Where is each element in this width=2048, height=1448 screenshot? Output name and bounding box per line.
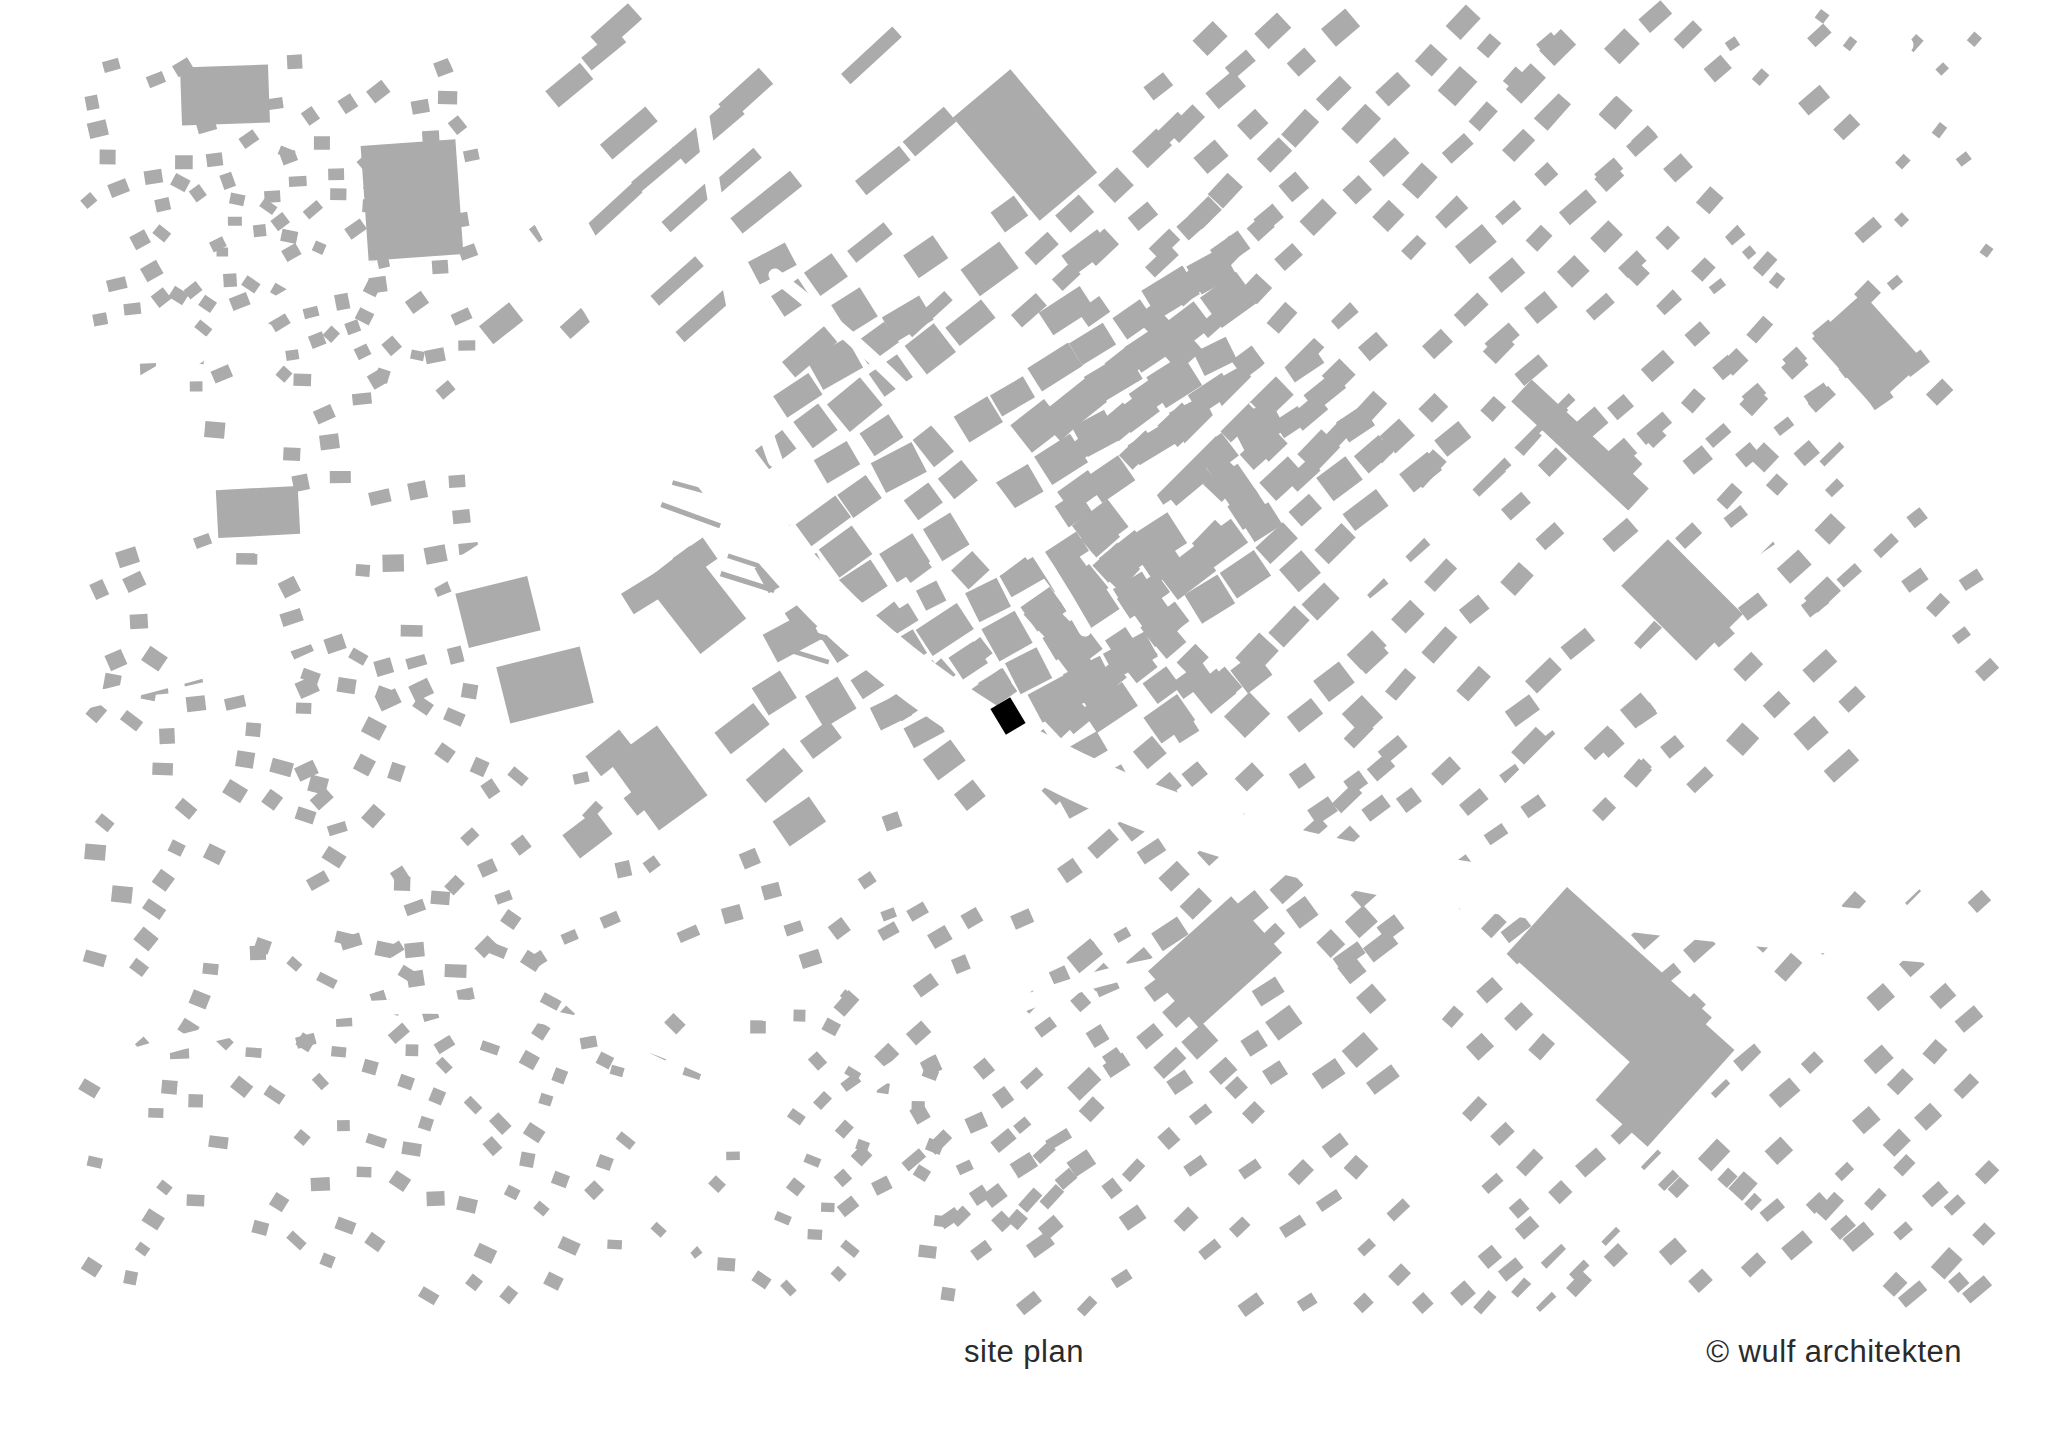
caption-site-plan: site plan bbox=[964, 1332, 1084, 1372]
site-plan-page: site plan © wulf architekten bbox=[0, 0, 2048, 1448]
credit-wulf-architekten: © wulf architekten bbox=[1706, 1332, 1962, 1372]
site-plan-map bbox=[0, 0, 2048, 1448]
